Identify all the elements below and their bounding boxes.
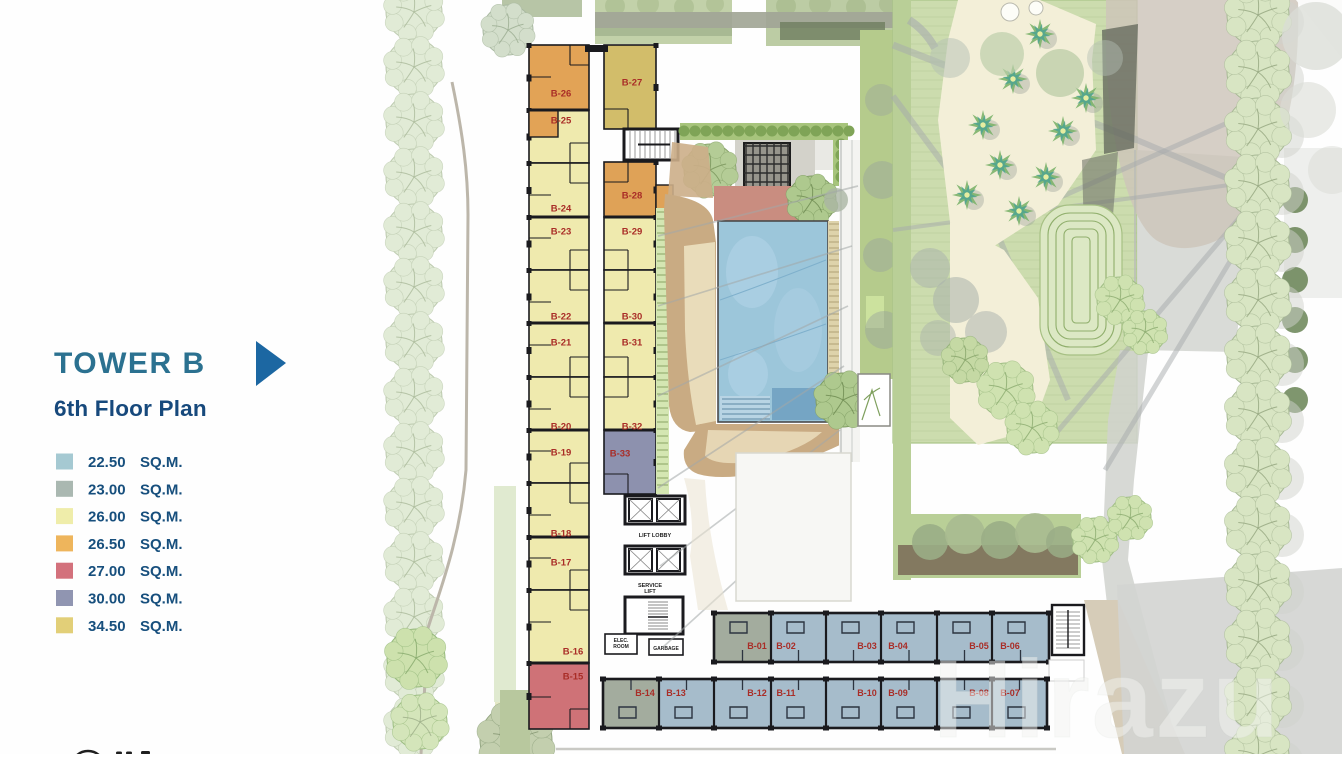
svg-text:B-22: B-22 <box>551 312 572 323</box>
svg-text:26.50: 26.50 <box>88 536 126 553</box>
svg-text:B-14: B-14 <box>635 688 655 698</box>
svg-text:B-10: B-10 <box>857 688 877 698</box>
svg-text:B-33: B-33 <box>610 449 631 460</box>
svg-text:B-30: B-30 <box>622 312 643 323</box>
svg-text:Hirazu: Hirazu <box>933 638 1281 754</box>
svg-text:B-16: B-16 <box>563 647 584 658</box>
svg-text:B-11: B-11 <box>776 688 795 698</box>
svg-text:B-19: B-19 <box>551 448 572 459</box>
svg-text:TOWER B: TOWER B <box>54 347 206 380</box>
svg-text:B-12: B-12 <box>747 688 767 698</box>
svg-text:SQ.M.: SQ.M. <box>140 509 183 526</box>
svg-text:LIFT LOBBY: LIFT LOBBY <box>639 533 672 539</box>
svg-text:ROOM: ROOM <box>613 644 629 650</box>
svg-text:B-01: B-01 <box>747 641 767 651</box>
svg-text:B-20: B-20 <box>551 422 572 433</box>
svg-text:B-24: B-24 <box>551 204 572 215</box>
svg-text:B-13: B-13 <box>666 688 686 698</box>
svg-text:SQ.M.: SQ.M. <box>140 454 183 471</box>
svg-text:SQ.M.: SQ.M. <box>140 481 183 498</box>
svg-text:B-29: B-29 <box>622 227 643 238</box>
svg-text:B-02: B-02 <box>776 641 796 651</box>
svg-text:B-27: B-27 <box>622 78 643 89</box>
svg-text:27.00: 27.00 <box>88 563 126 580</box>
svg-text:26.00: 26.00 <box>88 509 126 526</box>
svg-text:B-17: B-17 <box>551 558 572 569</box>
svg-text:B-32: B-32 <box>622 422 643 433</box>
svg-text:B-09: B-09 <box>888 688 908 698</box>
svg-text:SQ.M.: SQ.M. <box>140 618 183 635</box>
svg-text:B-15: B-15 <box>563 672 584 683</box>
svg-text:23.00: 23.00 <box>88 481 126 498</box>
svg-text:30.00: 30.00 <box>88 591 126 608</box>
svg-text:22.50: 22.50 <box>88 454 126 471</box>
svg-text:SQ.M.: SQ.M. <box>140 536 183 553</box>
svg-text:B-18: B-18 <box>551 529 572 540</box>
svg-text:SQ.M.: SQ.M. <box>140 563 183 580</box>
svg-text:B-28: B-28 <box>622 191 643 202</box>
svg-text:6th Floor Plan: 6th Floor Plan <box>54 396 207 421</box>
svg-text:B-31: B-31 <box>622 338 643 349</box>
svg-text:LIFT: LIFT <box>644 589 656 595</box>
svg-text:SQ.M.: SQ.M. <box>140 591 183 608</box>
svg-text:B-23: B-23 <box>551 227 572 238</box>
svg-text:B-21: B-21 <box>551 338 572 349</box>
svg-text:GARBAGE: GARBAGE <box>653 646 679 652</box>
svg-text:34.50: 34.50 <box>88 618 126 635</box>
svg-text:B-03: B-03 <box>857 641 877 651</box>
svg-text:B-04: B-04 <box>888 641 908 651</box>
svg-text:B-25: B-25 <box>551 116 572 127</box>
svg-text:B-26: B-26 <box>551 89 572 100</box>
